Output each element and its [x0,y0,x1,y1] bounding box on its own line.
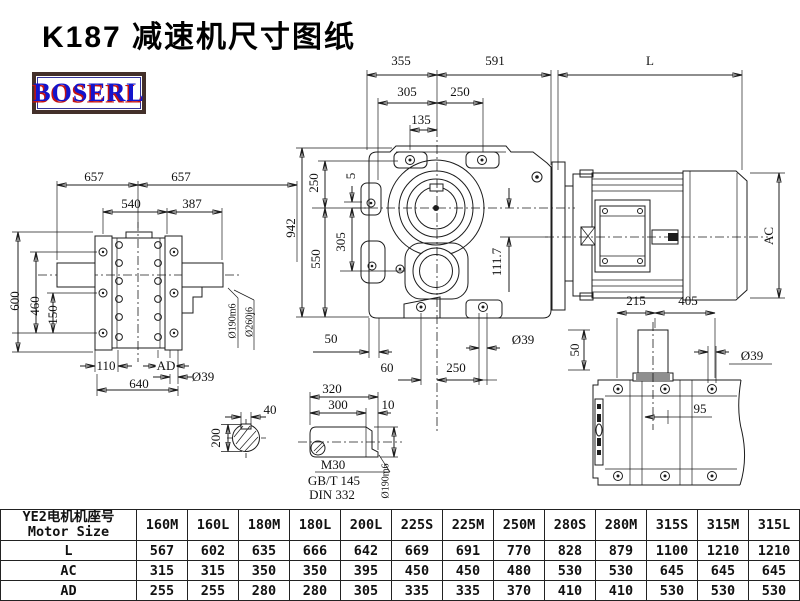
cell-L-180M: 635 [239,541,290,561]
housing-bolt-holes [116,242,162,341]
dim-AC: AC [761,227,777,245]
cell-AC-280M: 530 [596,561,647,581]
dim-L: L [646,53,654,69]
dim-5: 5 [343,173,359,180]
row-label-AC: AC [1,561,137,581]
dim-320: 320 [322,381,342,397]
cell-L-180L: 666 [290,541,341,561]
cell-AD-280S: 410 [545,581,596,601]
cell-AD-280M: 410 [596,581,647,601]
cell-AC-315M: 645 [698,561,749,581]
dim-460: 460 [27,296,43,316]
col-header-180L: 180L [290,510,341,541]
dim-540: 540 [121,196,141,212]
col-header-315M: 315M [698,510,749,541]
dim-135: 135 [411,112,431,128]
dim-305-left: 305 [333,232,349,252]
dim-405: 405 [678,293,698,309]
label-din332: DIN 332 [309,487,355,503]
dim-942: 942 [283,218,299,238]
col-header-315L: 315L [749,510,800,541]
brand-logo: BOSERL [32,72,146,114]
cell-AC-200L: 395 [341,561,392,581]
cell-L-160L: 602 [188,541,239,561]
dim-250-left: 250 [306,173,322,193]
dim-550: 550 [308,249,324,269]
cell-AC-315L: 645 [749,561,800,581]
dim-dia190-m6: Ø190m6 [228,304,239,339]
table-row-AC: AC 315 315 350 350 395 450 450 480 530 5… [1,561,800,581]
dim-215: 215 [626,293,646,309]
dim-250-bottom: 250 [446,360,466,376]
cell-AC-225S: 450 [392,561,443,581]
cell-AC-160L: 315 [188,561,239,581]
page-title: K187 减速机尺寸图纸 [42,12,356,56]
cell-AD-160M: 255 [137,581,188,601]
cell-AD-225S: 335 [392,581,443,601]
dim-AD: AD [156,358,177,374]
bottom-view [593,313,772,485]
col-header-315S: 315S [647,510,698,541]
dim-250-top: 250 [450,84,470,100]
cell-AD-250M: 370 [494,581,545,601]
cell-L-315S: 1100 [647,541,698,561]
dim-50-right: 50 [567,344,583,357]
dim-600: 600 [7,291,23,311]
col-header-280M: 280M [596,510,647,541]
dim-657-left: 657 [84,169,104,185]
dim-305-top: 305 [397,84,417,100]
flange-bolt-holes [99,248,178,337]
motor-size-label-cn: YE2电机机座号 [1,510,136,525]
terminal-box [595,200,650,272]
fan-cowl [683,171,747,300]
dim-dia39-mid: Ø39 [512,332,534,348]
mounting-bolts [367,156,542,312]
row-label-AD: AD [1,581,137,601]
cell-L-280M: 879 [596,541,647,561]
col-header-160L: 160L [188,510,239,541]
motor-size-table: YE2电机机座号 Motor Size 160M 160L 180M 180L … [0,509,800,601]
cell-AD-180M: 280 [239,581,290,601]
table-row-L: L 567 602 635 666 642 669 691 770 828 87… [1,541,800,561]
cell-L-200L: 642 [341,541,392,561]
brand-logo-text: BOSERL [33,78,145,108]
cell-AC-160M: 315 [137,561,188,581]
cell-AD-315M: 530 [698,581,749,601]
cell-L-250M: 770 [494,541,545,561]
cell-AD-315S: 530 [647,581,698,601]
cell-AD-180L: 280 [290,581,341,601]
dim-657-right: 657 [171,169,191,185]
dim-300: 300 [328,397,348,413]
cell-AC-315S: 645 [647,561,698,581]
cell-AD-315L: 530 [749,581,800,601]
cell-L-315M: 1210 [698,541,749,561]
cell-AC-225M: 450 [443,561,494,581]
dim-dia39-left: Ø39 [192,369,214,385]
table-header-motor-size: YE2电机机座号 Motor Size [1,510,137,541]
col-header-160M: 160M [137,510,188,541]
cell-AC-180M: 350 [239,561,290,581]
dim-640: 640 [129,376,149,392]
col-header-225S: 225S [392,510,443,541]
front-view [12,181,297,396]
dim-95: 95 [694,401,707,417]
cell-AD-160L: 255 [188,581,239,601]
col-header-225M: 225M [443,510,494,541]
dim-355: 355 [391,53,411,69]
cell-L-225S: 669 [392,541,443,561]
cell-L-315L: 1210 [749,541,800,561]
dim-110: 110 [95,358,116,374]
col-header-200L: 200L [341,510,392,541]
dim-dia39-bottom: Ø39 [741,348,763,364]
cell-L-225M: 691 [443,541,494,561]
dim-10: 10 [382,397,395,413]
break-line [739,380,745,485]
cell-L-280S: 828 [545,541,596,561]
dim-111-7: 111.7 [489,248,505,276]
cell-AC-250M: 480 [494,561,545,581]
cell-L-160M: 567 [137,541,188,561]
dim-60: 60 [381,360,394,376]
dim-dia190-m6-shaft: Ø190m6 [381,464,392,499]
input-shaft-bore [388,160,484,256]
col-header-280S: 280S [545,510,596,541]
row-label-L: L [1,541,137,561]
dim-591: 591 [485,53,505,69]
motor-view [545,162,785,310]
col-header-250M: 250M [494,510,545,541]
cell-AC-180L: 350 [290,561,341,581]
col-header-180M: 180M [239,510,290,541]
side-view [296,70,742,432]
dim-200: 200 [208,428,224,448]
cell-AD-200L: 305 [341,581,392,601]
dim-150: 150 [45,305,61,325]
dim-dia260-j6: Ø260j6 [245,307,256,337]
cell-AD-225M: 335 [443,581,494,601]
drawing-sheet: K187 减速机尺寸图纸 BOSERL [0,0,800,601]
dim-50-bottom: 50 [325,331,338,347]
motor-size-label-en: Motor Size [1,525,136,540]
dim-387: 387 [182,196,202,212]
table-header-row: YE2电机机座号 Motor Size 160M 160L 180M 180L … [1,510,800,541]
conduit-stub [581,227,595,245]
shaft-section-detail [221,412,266,458]
foot-bolt-holes [614,385,717,481]
cell-AC-280S: 530 [545,561,596,581]
table-row-AD: AD 255 255 280 280 305 335 335 370 410 4… [1,581,800,601]
label-m30: M30 [321,457,346,473]
dim-40: 40 [264,402,277,418]
